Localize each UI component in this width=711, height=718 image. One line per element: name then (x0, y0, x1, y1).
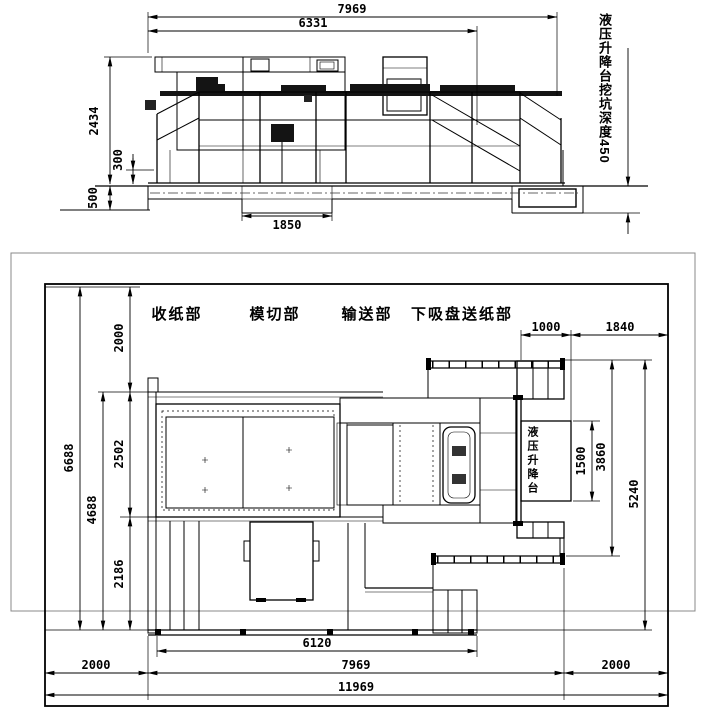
dim-lift-length: 1500 (574, 447, 588, 476)
dim-site-depth: 6688 (62, 444, 76, 473)
dim-foundation-depth: 500 (86, 187, 100, 209)
elevation-view: 7969 6331 2434 300 500 1850 (60, 2, 648, 234)
machine-plan (148, 378, 523, 633)
plan-dimensions: 6688 4688 2000 2502 2186 1000 1840 1500 … (45, 287, 668, 700)
dim-work-depth: 4688 (85, 496, 99, 525)
dim-right-zone-depth: 5240 (627, 480, 641, 509)
section-label-die-cutting: 模切部 (249, 305, 300, 323)
dim-right-top-margin: 1840 (606, 320, 635, 334)
dim-machine-length: 7969 (342, 658, 371, 672)
plan-view: 收纸部 模切部 输送部 下吸盘送纸部 (11, 253, 695, 706)
pit-depth-note: 液压升降台挖坑深度450 (595, 13, 614, 191)
section-labels: 收纸部 模切部 输送部 下吸盘送纸部 (151, 305, 513, 323)
conveyor-rollers (347, 425, 393, 505)
dim-top-margin: 2000 (112, 324, 126, 353)
conveyor-edge-strip (337, 423, 347, 505)
dim-right-margin: 2000 (602, 658, 631, 672)
section-label-delivery: 收纸部 (151, 305, 202, 323)
dim-lift-zone-depth: 3860 (594, 443, 608, 472)
dim-base-height: 300 (111, 149, 125, 171)
upper-stair (517, 361, 564, 399)
dim-site-length: 11969 (338, 680, 374, 694)
control-panel (196, 77, 218, 93)
dim-total-length: 7969 (338, 2, 367, 16)
dim-body-length: 6331 (299, 16, 328, 30)
site-boundary (45, 284, 668, 706)
top-panel-left (251, 59, 269, 71)
foundation-hatch (60, 186, 648, 213)
left-platform-strip (148, 392, 156, 633)
section-label-conveyor: 输送部 (341, 305, 392, 323)
dim-height: 2434 (87, 107, 101, 136)
delivery-panel (166, 417, 243, 508)
dim-lift-width: 1000 (532, 320, 561, 334)
lift-platform-label: 液压升降台 (524, 426, 540, 500)
die-cut-panel (243, 417, 334, 508)
lower-stair-upper (517, 522, 564, 538)
section-label-feeder: 下吸盘送纸部 (411, 305, 513, 323)
left-device (145, 100, 156, 110)
main-body-plan (156, 404, 340, 517)
feeder-head (340, 398, 480, 423)
die-cart (250, 522, 313, 600)
dim-center-pit-width: 1850 (273, 218, 302, 232)
dim-platform-length: 6120 (303, 636, 332, 650)
front-control-box (271, 124, 294, 142)
lift-platform-side (519, 189, 576, 207)
dim-walkway-depth: 2186 (112, 560, 126, 589)
platform-railings (148, 358, 571, 635)
dim-machine-depth: 2502 (112, 440, 126, 469)
safety-railing (148, 92, 565, 186)
dim-left-margin: 2000 (82, 658, 111, 672)
machine-layout-drawing: 7969 6331 2434 300 500 1850 收纸部 模切部 输送部 … (0, 0, 711, 718)
